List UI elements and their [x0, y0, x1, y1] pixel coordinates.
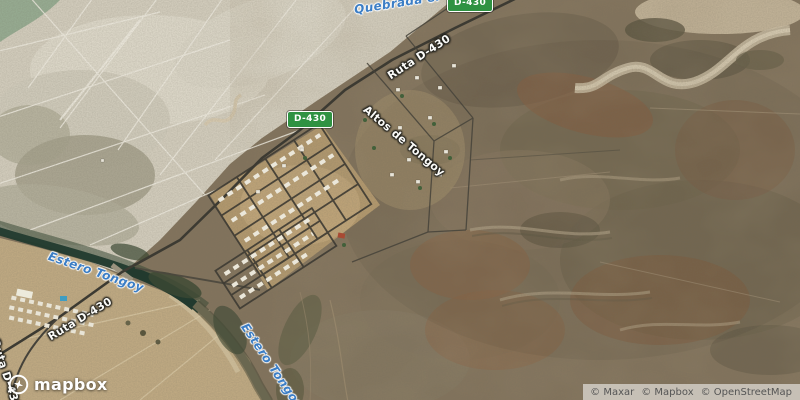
satellite-imagery: [0, 0, 800, 400]
attribution-openstreetmap-link[interactable]: © OpenStreetMap: [701, 387, 792, 398]
mapbox-logo-link[interactable]: mapbox: [8, 374, 108, 395]
map-viewport[interactable]: Quebrada el D-430 Ruta D-430 D-430 Altos…: [0, 0, 800, 400]
texture-speckle: [0, 0, 800, 400]
road-shield-d430-middle: D-430: [287, 111, 333, 128]
attribution-mapbox-link[interactable]: © Mapbox: [641, 387, 693, 398]
attribution-maxar-link[interactable]: © Maxar: [590, 387, 634, 398]
mapbox-logo-icon: [8, 374, 29, 395]
mapbox-wordmark: mapbox: [34, 375, 108, 394]
road-shield-d430-top: D-430: [447, 0, 493, 12]
attribution-bar: © Maxar © Mapbox © OpenStreetMap: [583, 384, 800, 400]
